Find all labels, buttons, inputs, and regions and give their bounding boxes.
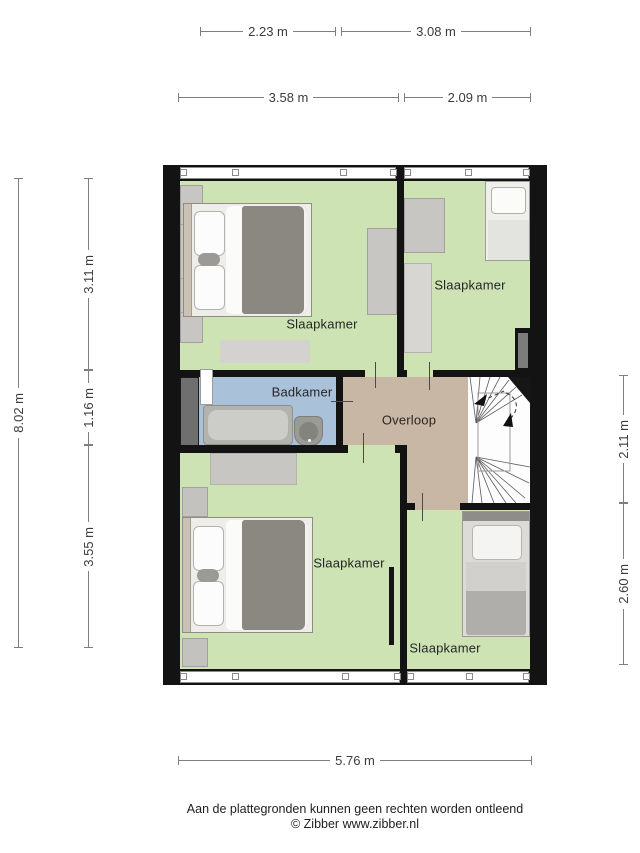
window-mullion: [394, 673, 401, 680]
door-tick: [422, 493, 423, 521]
bed-pillow: [193, 581, 224, 626]
double-bed: [183, 203, 312, 317]
bed-duvet: [242, 520, 308, 630]
wardrobe: [367, 228, 397, 315]
dim-line: [405, 97, 443, 98]
floor-plan: Slaapkamer Slaapkamer Badkamer Overloop …: [163, 165, 547, 685]
wardrobe: [404, 198, 445, 253]
window-mullion: [407, 673, 414, 680]
room-landing: [343, 377, 468, 445]
window-mullion: [404, 169, 411, 176]
bed-blanket: [488, 220, 529, 260]
window: [180, 671, 400, 683]
room-label-bedroom-top-right: Slaapkamer: [434, 278, 505, 293]
dim-top-2-23: 2.23 m: [200, 27, 336, 36]
bed-cushion: [197, 569, 219, 582]
dim-label: 1.16 m: [81, 388, 96, 428]
dim-label: 3.11 m: [81, 255, 96, 294]
sink-icon: [294, 416, 323, 446]
dim-top-3-58: 3.58 m: [178, 93, 399, 102]
door-tick: [331, 401, 353, 402]
window-mullion: [342, 673, 349, 680]
dim-line: [380, 760, 531, 761]
dim-line: [461, 31, 530, 32]
disclaimer-text: Aan de plattegronden kunnen geen rechten…: [163, 802, 547, 817]
dim-line: [88, 432, 89, 444]
dim-line: [492, 97, 530, 98]
dim-tick: [531, 756, 532, 765]
bed-headboard: [184, 204, 192, 316]
room-label-landing: Overloop: [382, 413, 436, 428]
dim-label: 8.02 m: [11, 393, 26, 433]
dim-tick: [398, 93, 399, 102]
window-mullion: [180, 673, 187, 680]
wall-interior: [213, 370, 365, 377]
dim-tick: [530, 27, 531, 36]
single-bed: [462, 511, 530, 637]
wall-interior: [400, 445, 407, 669]
copyright-text: © Zibber www.zibber.nl: [163, 817, 547, 832]
bed-headboard: [463, 512, 529, 521]
window-mullion: [523, 169, 530, 176]
bathroom-door: [200, 369, 213, 405]
room-label-bedroom-bottom-left: Slaapkamer: [313, 556, 384, 571]
dim-label: 2.60 m: [616, 564, 631, 604]
door-opening: [348, 445, 395, 453]
desk: [404, 263, 432, 353]
room-landing-stem: [407, 445, 468, 503]
wall-interior: [180, 370, 200, 377]
room-label-bedroom-top-left: Slaapkamer: [286, 317, 357, 332]
dim-left-3-11: 3.11 m: [84, 178, 93, 370]
dim-tick: [84, 647, 93, 648]
dim-line: [623, 463, 624, 502]
dim-right-2-60: 2.60 m: [619, 503, 628, 665]
bed-pillow: [472, 525, 522, 560]
dim-label: 2.23 m: [248, 27, 288, 36]
window: [404, 167, 529, 179]
dim-left-1-16: 1.16 m: [84, 370, 93, 445]
bed-pillow: [491, 187, 526, 214]
window-mullion: [232, 673, 239, 680]
bed-pillow: [194, 211, 225, 256]
dim-tick: [335, 27, 336, 36]
dim-line: [18, 179, 19, 388]
dim-line: [342, 31, 411, 32]
footer: Aan de plattegronden kunnen geen rechten…: [163, 802, 547, 832]
rug: [220, 340, 310, 363]
dim-line: [201, 31, 243, 32]
bed-cushion: [198, 253, 220, 266]
dim-line: [18, 438, 19, 647]
window-mullion: [465, 169, 472, 176]
chimney-niche: [518, 333, 528, 368]
bed-sheet: [466, 562, 526, 591]
bed-headboard: [183, 518, 191, 632]
dim-top-2-09: 2.09 m: [404, 93, 531, 102]
window-mullion: [180, 169, 187, 176]
bed-pillow: [194, 265, 225, 310]
wall-interior: [407, 503, 415, 510]
dim-line: [179, 97, 264, 98]
door-tick: [429, 362, 430, 390]
cabinet: [182, 638, 208, 667]
desk: [210, 453, 297, 485]
double-bed: [182, 517, 313, 633]
dim-tick: [14, 647, 23, 648]
dim-tick: [530, 93, 531, 102]
dim-line: [88, 571, 89, 647]
dim-line: [179, 760, 330, 761]
dim-label: 3.55 m: [81, 527, 96, 567]
single-bed: [485, 181, 530, 261]
dim-line: [623, 376, 624, 415]
room-label-bedroom-bottom-right: Slaapkamer: [409, 641, 480, 656]
dim-left-8-02: 8.02 m: [14, 178, 23, 648]
dim-line: [88, 298, 89, 369]
window: [407, 671, 529, 683]
dim-top-3-08: 3.08 m: [341, 27, 531, 36]
duct-shaft: [180, 377, 199, 447]
floorplan-page: 2.23 m 3.08 m 3.58 m 2.09 m 8.02 m 3.11 …: [0, 0, 640, 853]
bathtub-icon: [203, 405, 293, 445]
wall-exterior-left: [163, 165, 180, 685]
wall-exterior-right: [530, 165, 547, 685]
dim-bottom-5-76: 5.76 m: [178, 756, 532, 765]
dim-line: [293, 31, 335, 32]
wall-interior: [180, 445, 348, 453]
wall-interior: [336, 377, 343, 453]
bathtub-basin: [208, 410, 288, 440]
door-tick: [363, 433, 364, 463]
bed-pillow: [193, 526, 224, 571]
window: [180, 167, 396, 179]
stairs: [468, 377, 530, 503]
dim-label: 3.08 m: [416, 27, 456, 36]
window-mullion: [340, 169, 347, 176]
window-mullion: [232, 169, 239, 176]
wall-interior: [397, 181, 404, 371]
window-mullion: [390, 169, 397, 176]
dim-label: 2.11 m: [616, 420, 631, 459]
dim-tick: [619, 664, 628, 665]
room-label-bathroom: Badkamer: [272, 385, 333, 400]
wall-interior: [397, 370, 407, 377]
window-mullion: [466, 673, 473, 680]
dim-line: [88, 179, 89, 250]
dim-line: [623, 609, 624, 664]
dim-line: [88, 371, 89, 383]
dim-label: 3.58 m: [269, 93, 309, 102]
cabinet: [182, 487, 208, 517]
door-tick: [375, 362, 376, 388]
dim-label: 2.09 m: [448, 93, 488, 102]
wall-interior: [460, 503, 530, 510]
window-mullion: [523, 673, 530, 680]
dim-left-3-55: 3.55 m: [84, 445, 93, 648]
open-door-leaf: [389, 567, 394, 645]
bed-blanket: [466, 591, 526, 635]
dim-line: [313, 97, 398, 98]
door-opening: [365, 370, 397, 377]
bed-duvet: [242, 206, 307, 314]
dim-line: [88, 446, 89, 522]
dim-right-2-11: 2.11 m: [619, 375, 628, 503]
dim-line: [623, 504, 624, 559]
sink-drain: [308, 439, 311, 442]
dim-label: 5.76 m: [335, 756, 375, 765]
